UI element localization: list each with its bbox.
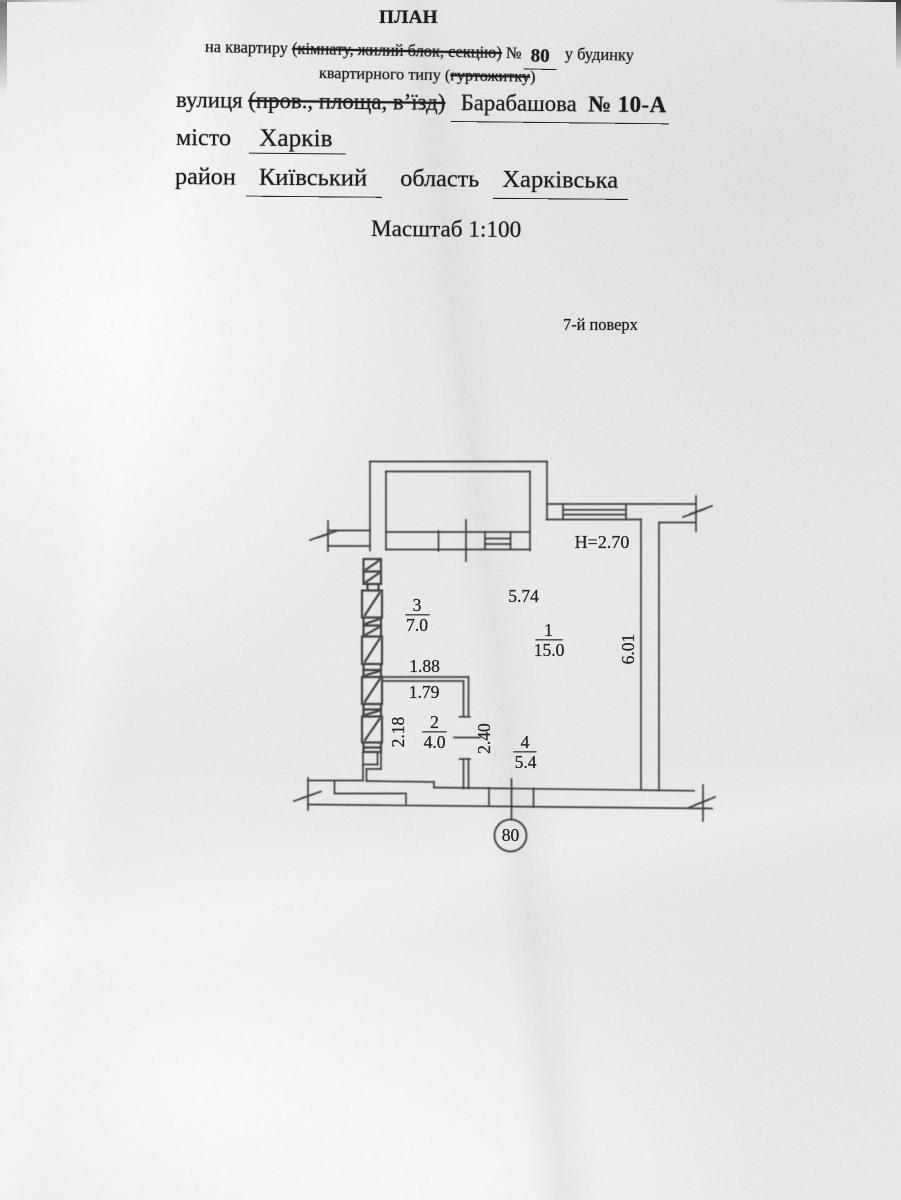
svg-text:2.18: 2.18 [388,716,408,747]
svg-text:4: 4 [521,732,530,752]
svg-text:1: 1 [544,620,553,640]
svg-text:4.0: 4.0 [424,732,446,752]
svg-text:15.0: 15.0 [534,640,565,660]
svg-text:5.4: 5.4 [515,752,537,772]
svg-text:2.40: 2.40 [474,723,494,754]
svg-text:3: 3 [413,595,422,615]
svg-text:7.0: 7.0 [406,615,428,635]
svg-text:Н=2.70: Н=2.70 [575,532,630,552]
svg-text:5.74: 5.74 [508,586,539,606]
svg-text:1.88: 1.88 [409,656,440,676]
svg-text:1.79: 1.79 [409,682,440,702]
svg-text:80: 80 [502,825,520,845]
svg-text:2: 2 [430,712,439,732]
svg-text:6.01: 6.01 [618,634,638,665]
